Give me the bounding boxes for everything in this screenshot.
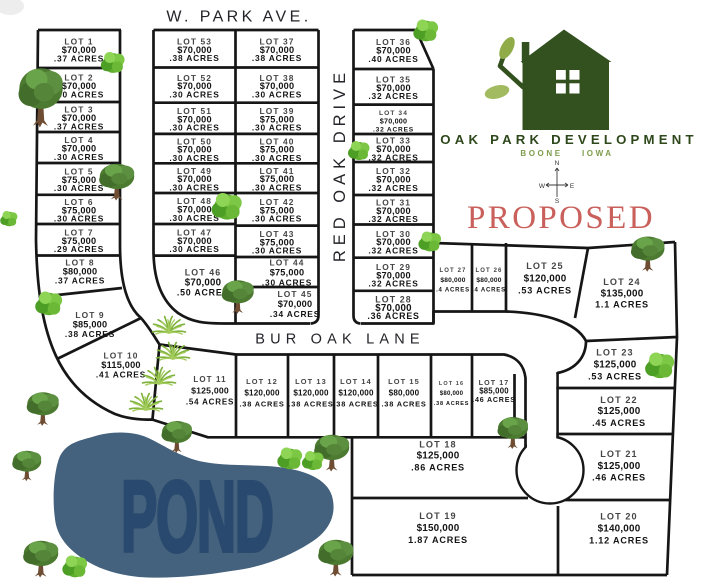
svg-text:.30 ACRES: .30 ACRES <box>252 123 302 133</box>
svg-text:$75,000: $75,000 <box>270 268 305 278</box>
svg-text:.30 ACRES: .30 ACRES <box>262 278 312 288</box>
svg-text:$80,000: $80,000 <box>476 277 501 284</box>
svg-text:.4 ACRES: .4 ACRES <box>472 288 506 294</box>
svg-text:.32 ACRES: .32 ACRES <box>368 152 418 162</box>
svg-text:.37 ACRES: .37 ACRES <box>54 53 104 63</box>
svg-text:.32 ACRES: .32 ACRES <box>368 245 418 255</box>
svg-text:.36 ACRES: .36 ACRES <box>367 311 419 321</box>
svg-text:$120,000: $120,000 <box>338 388 374 397</box>
svg-text:POND: POND <box>121 461 273 573</box>
svg-text:.46 ACRES: .46 ACRES <box>472 396 516 404</box>
svg-text:.53 ACRES: .53 ACRES <box>588 371 642 381</box>
svg-text:LOT 10: LOT 10 <box>104 351 139 361</box>
svg-text:.30 ACRES: .30 ACRES <box>252 214 302 224</box>
svg-text:LOT 22: LOT 22 <box>600 395 637 405</box>
svg-text:.30 ACRES: .30 ACRES <box>252 153 302 163</box>
svg-text:LOT 46: LOT 46 <box>185 268 221 278</box>
svg-text:$125,000: $125,000 <box>191 385 229 395</box>
svg-text:LOT 19: LOT 19 <box>419 511 456 521</box>
svg-text:.32 ACRES: .32 ACRES <box>368 279 418 289</box>
svg-text:W. PARK AVE.: W. PARK AVE. <box>166 9 311 26</box>
svg-text:$150,000: $150,000 <box>417 523 460 534</box>
svg-text:.38 ACRES: .38 ACRES <box>239 400 284 409</box>
svg-text:LOT 16: LOT 16 <box>439 381 464 387</box>
svg-text:$125,000: $125,000 <box>598 461 641 472</box>
svg-text:.38 ACRES: .38 ACRES <box>252 53 302 63</box>
svg-text:.32 ACRES: .32 ACRES <box>373 127 414 134</box>
svg-text:.30 ACRES: .30 ACRES <box>54 152 104 162</box>
svg-text:RED OAK DRIVE: RED OAK DRIVE <box>331 68 349 262</box>
svg-text:BUR OAK LANE: BUR OAK LANE <box>255 332 425 348</box>
svg-text:.53 ACRES: .53 ACRES <box>518 286 572 296</box>
svg-text:LOT 13: LOT 13 <box>295 377 327 386</box>
svg-text:.38 ACRES: .38 ACRES <box>288 400 333 409</box>
svg-text:LOT 44: LOT 44 <box>270 258 305 268</box>
svg-text:$85,000: $85,000 <box>73 320 108 330</box>
svg-text:LOT 15: LOT 15 <box>388 377 420 386</box>
svg-text:$70,000: $70,000 <box>380 116 407 125</box>
svg-text:$120,000: $120,000 <box>244 388 280 397</box>
svg-text:$70,000: $70,000 <box>278 299 313 309</box>
svg-text:LOT 45: LOT 45 <box>278 289 313 299</box>
svg-text:OAK PARK DEVELOPMENT: OAK PARK DEVELOPMENT <box>440 132 697 147</box>
svg-text:1.87 ACRES: 1.87 ACRES <box>408 535 468 545</box>
svg-text:1.1 ACRES: 1.1 ACRES <box>595 300 649 310</box>
svg-text:$140,000: $140,000 <box>598 523 641 534</box>
svg-text:.37 ACRES: .37 ACRES <box>54 121 104 131</box>
svg-text:LOT 24: LOT 24 <box>603 277 640 287</box>
svg-text:$80,000: $80,000 <box>389 388 420 397</box>
svg-text:.38 ACRES: .38 ACRES <box>65 329 115 339</box>
svg-text:.54 ACRES: .54 ACRES <box>186 397 234 406</box>
svg-text:.30 ACRES: .30 ACRES <box>169 153 219 163</box>
svg-text:$125,000: $125,000 <box>417 451 460 462</box>
svg-text:$80,000: $80,000 <box>440 277 465 284</box>
svg-text:.38 ACRES: .38 ACRES <box>381 400 426 409</box>
svg-text:LOT 18: LOT 18 <box>419 439 456 449</box>
svg-text:.32 ACRES: .32 ACRES <box>368 91 418 101</box>
svg-text:LOT 12: LOT 12 <box>246 377 278 386</box>
svg-text:.29 ACRES: .29 ACRES <box>54 244 104 254</box>
svg-text:LOT 14: LOT 14 <box>340 377 372 386</box>
svg-text:$80,000: $80,000 <box>440 390 464 397</box>
svg-text:.38 ACRES: .38 ACRES <box>333 400 378 409</box>
svg-text:$85,000: $85,000 <box>479 387 509 396</box>
svg-text:LOT 11: LOT 11 <box>193 375 226 384</box>
svg-text:.30 ACRES: .30 ACRES <box>252 246 302 256</box>
svg-text:.46 ACRES: .46 ACRES <box>592 473 646 483</box>
svg-text:.30 ACRES: .30 ACRES <box>252 182 302 192</box>
svg-text:LOT 20: LOT 20 <box>600 511 637 521</box>
svg-text:.50 ACRES: .50 ACRES <box>177 288 229 298</box>
svg-text:.86 ACRES: .86 ACRES <box>411 463 465 473</box>
svg-text:.32 ACRES: .32 ACRES <box>368 214 418 224</box>
svg-text:PROPOSED: PROPOSED <box>467 200 655 236</box>
svg-text:LOT 21: LOT 21 <box>600 449 637 459</box>
svg-text:.30 ACRES: .30 ACRES <box>252 89 302 99</box>
svg-text:.41 ACRES: .41 ACRES <box>96 370 146 380</box>
svg-text:$125,000: $125,000 <box>598 406 641 417</box>
svg-text:.32 ACRES: .32 ACRES <box>368 183 418 193</box>
svg-text:LOT 9: LOT 9 <box>75 310 104 320</box>
svg-text:.30 ACRES: .30 ACRES <box>54 183 104 193</box>
svg-text:E: E <box>570 183 575 190</box>
svg-text:LOT 27: LOT 27 <box>440 268 467 274</box>
svg-text:N: N <box>555 160 560 167</box>
svg-text:.38 ACRES: .38 ACRES <box>434 401 469 407</box>
svg-text:$115,000: $115,000 <box>101 360 140 370</box>
svg-text:.34 ACRES: .34 ACRES <box>270 309 320 319</box>
svg-text:LOT 26: LOT 26 <box>476 268 503 274</box>
svg-text:.30 ACRES: .30 ACRES <box>169 213 219 223</box>
svg-text:1.12 ACRES: 1.12 ACRES <box>589 535 649 545</box>
svg-text:W: W <box>539 183 546 190</box>
svg-text:.30 ACRES: .30 ACRES <box>169 244 219 254</box>
svg-text:$120,000: $120,000 <box>524 274 567 285</box>
svg-text:.40 ACRES: .40 ACRES <box>368 54 418 64</box>
svg-text:LOT 25: LOT 25 <box>526 261 563 271</box>
svg-text:$120,000: $120,000 <box>293 388 329 397</box>
svg-text:.38 ACRES: .38 ACRES <box>169 53 219 63</box>
svg-text:$135,000: $135,000 <box>601 289 644 300</box>
svg-text:LOT 23: LOT 23 <box>596 347 633 357</box>
svg-text:.30 ACRES: .30 ACRES <box>169 182 219 192</box>
svg-text:.37 ACRES: .37 ACRES <box>55 276 105 286</box>
svg-text:.30 ACRES: .30 ACRES <box>169 89 219 99</box>
svg-text:.30 ACRES: .30 ACRES <box>169 123 219 133</box>
svg-text:.45 ACRES: .45 ACRES <box>592 418 646 428</box>
svg-text:BOONE IOWA: BOONE IOWA <box>520 149 613 158</box>
svg-text:$125,000: $125,000 <box>594 359 637 370</box>
svg-text:.4 ACRES: .4 ACRES <box>436 288 470 294</box>
svg-text:.30 ACRES: .30 ACRES <box>54 214 104 224</box>
